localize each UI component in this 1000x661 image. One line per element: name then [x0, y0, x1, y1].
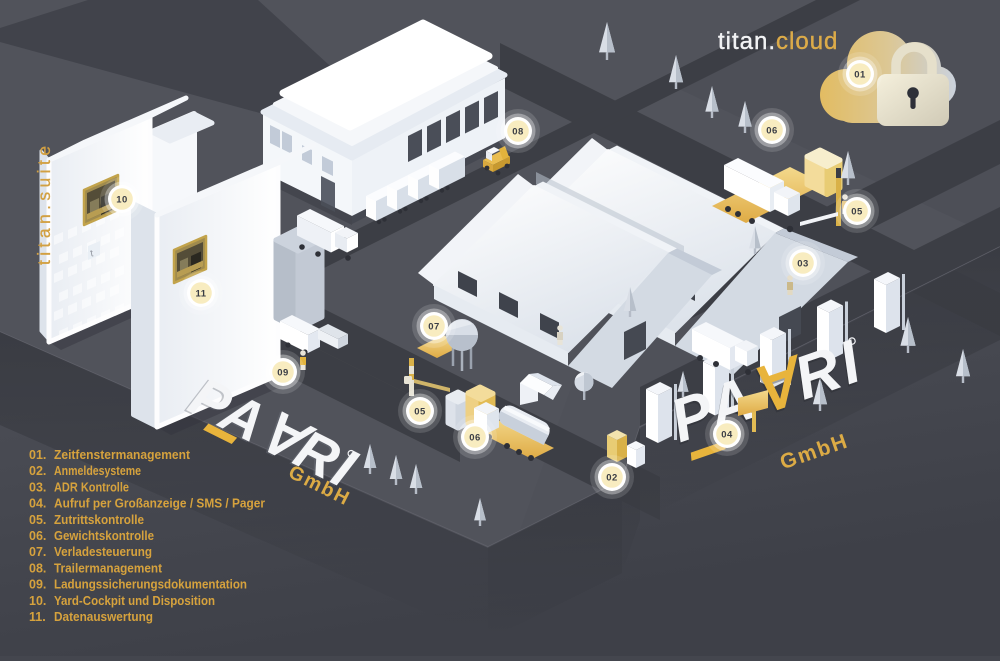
svg-text:02.: 02.	[29, 464, 46, 478]
svg-text:08.: 08.	[29, 561, 46, 575]
svg-text:01: 01	[854, 69, 866, 80]
svg-text:titan.suite: titan.suite	[34, 144, 54, 265]
svg-text:04: 04	[721, 429, 733, 440]
svg-text:Trailermanagement: Trailermanagement	[54, 561, 163, 575]
svg-text:10.: 10.	[29, 594, 46, 608]
svg-text:Gewichtskontrolle: Gewichtskontrolle	[54, 529, 154, 543]
svg-text:06: 06	[469, 432, 481, 443]
svg-text:11: 11	[195, 288, 206, 299]
svg-text:07: 07	[428, 321, 440, 332]
svg-text:08: 08	[512, 126, 524, 137]
svg-text:07.: 07.	[29, 545, 46, 559]
svg-text:titan.cloud: titan.cloud	[718, 28, 838, 55]
svg-text:ADR Kontrolle: ADR Kontrolle	[54, 480, 129, 494]
svg-text:Aufruf per Großanzeige / SMS /: Aufruf per Großanzeige / SMS / Pager	[54, 497, 265, 511]
svg-text:Ladungssicherungsdokumentation: Ladungssicherungsdokumentation	[54, 578, 247, 592]
svg-text:05: 05	[414, 406, 426, 417]
svg-text:04.: 04.	[29, 497, 46, 511]
svg-text:11.: 11.	[29, 610, 46, 624]
svg-text:Datenauswertung: Datenauswertung	[54, 610, 153, 624]
svg-text:Zeitfenstermanagement: Zeitfenstermanagement	[54, 448, 191, 462]
svg-text:Yard-Cockpit und Disposition: Yard-Cockpit und Disposition	[54, 594, 215, 608]
svg-text:02: 02	[606, 472, 618, 483]
svg-text:03.: 03.	[29, 480, 46, 494]
svg-text:01.: 01.	[29, 448, 46, 462]
svg-text:06: 06	[766, 125, 778, 136]
svg-text:10: 10	[116, 194, 128, 205]
svg-text:05: 05	[851, 206, 863, 217]
svg-text:Anmeldesysteme: Anmeldesysteme	[54, 464, 141, 478]
svg-text:03: 03	[797, 258, 809, 269]
svg-text:Verladesteuerung: Verladesteuerung	[54, 545, 152, 559]
svg-text:05.: 05.	[29, 513, 46, 527]
svg-text:Zutrittskontrolle: Zutrittskontrolle	[54, 513, 144, 527]
svg-text:09: 09	[277, 367, 289, 378]
svg-text:09.: 09.	[29, 578, 46, 592]
svg-text:06.: 06.	[29, 529, 46, 543]
